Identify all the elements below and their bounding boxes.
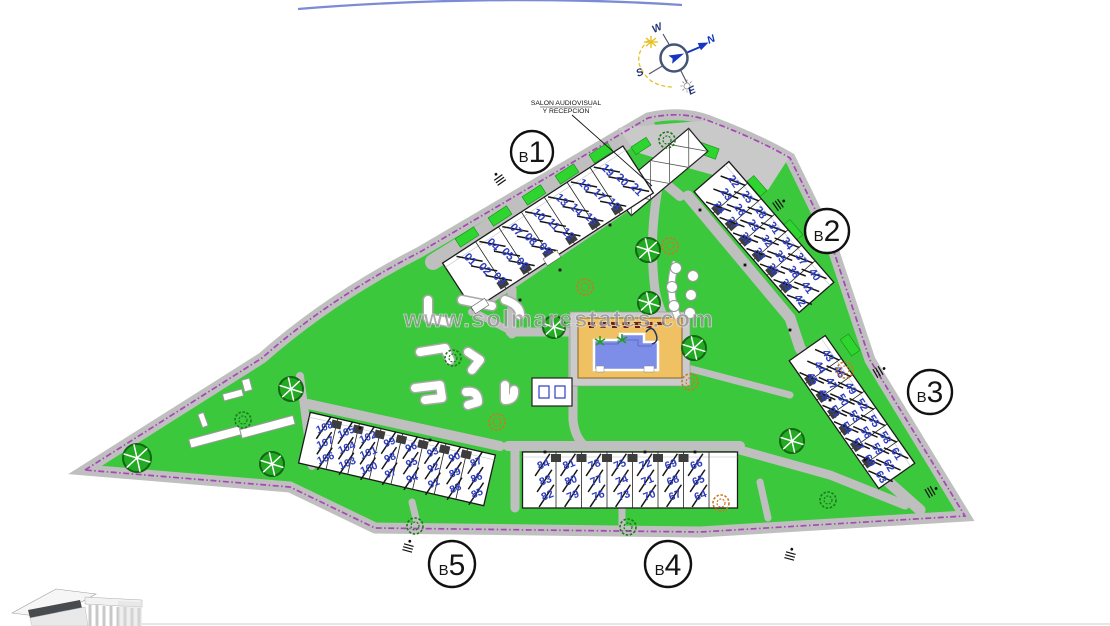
lamp-icon <box>519 299 522 302</box>
site-plan-canvas: 0102030405060708091011121314151617181920… <box>0 0 1110 626</box>
block-label-b2: B2 <box>805 209 849 253</box>
utility-hatch-icon <box>784 547 797 561</box>
building-b4: 8483828180797877767574737271706968676665… <box>523 452 738 508</box>
tree-icon <box>780 429 804 453</box>
utility-hatch-icon <box>402 539 415 553</box>
lamp-icon <box>789 329 792 332</box>
tree-icon <box>260 452 284 476</box>
lamp-icon <box>864 459 867 462</box>
lamp-icon <box>644 451 647 454</box>
pool-steps <box>644 366 654 372</box>
block-label-b5: B5 <box>429 541 475 587</box>
top-banner-arc <box>298 0 682 9</box>
lamp-icon <box>359 427 362 430</box>
watermark-text: www.solmarestates.com <box>403 306 715 333</box>
compass-n-spoke <box>686 47 700 53</box>
annotation-line1: SALON AUDIOVISUAL <box>531 100 601 107</box>
tree-icon <box>636 238 660 262</box>
stair-core <box>577 454 587 462</box>
stair-core <box>551 454 561 462</box>
lamp-icon <box>744 264 747 267</box>
compass-e-label: E <box>686 83 698 97</box>
compass-w-label: W <box>650 20 665 36</box>
block-label-b4: B4 <box>645 541 691 587</box>
compass-rose: N W S E <box>634 20 717 98</box>
lamp-icon <box>694 451 697 454</box>
sun-icon-yellow <box>644 36 658 48</box>
block-label-b1: B1 <box>511 131 553 173</box>
compass-s-label: S <box>634 66 645 80</box>
utility-hatch-icon <box>491 170 506 185</box>
compass-s-spoke <box>649 65 664 74</box>
stair-core <box>653 454 663 462</box>
stair-core <box>679 454 689 462</box>
lamp-icon <box>699 209 702 212</box>
site-plan-svg: 0102030405060708091011121314151617181920… <box>0 0 1110 626</box>
lamp-icon <box>544 451 547 454</box>
tree-icon <box>682 336 706 360</box>
stair-core <box>628 454 638 462</box>
corner-building-render <box>12 589 142 626</box>
lamp-icon <box>829 399 832 402</box>
tree-icon <box>123 444 151 472</box>
lamp-icon <box>609 224 612 227</box>
annotation-line2: Y RECEPCION <box>543 108 590 115</box>
lamp-icon <box>429 439 432 442</box>
compass-e-spoke <box>680 69 687 83</box>
tree-icon <box>279 377 303 401</box>
block-label-b3: B3 <box>908 370 952 414</box>
services-building <box>532 378 572 406</box>
lamp-icon <box>559 269 562 272</box>
pool-steps <box>596 366 604 372</box>
compass-n-label: N <box>705 32 717 46</box>
stair-core <box>602 454 612 462</box>
